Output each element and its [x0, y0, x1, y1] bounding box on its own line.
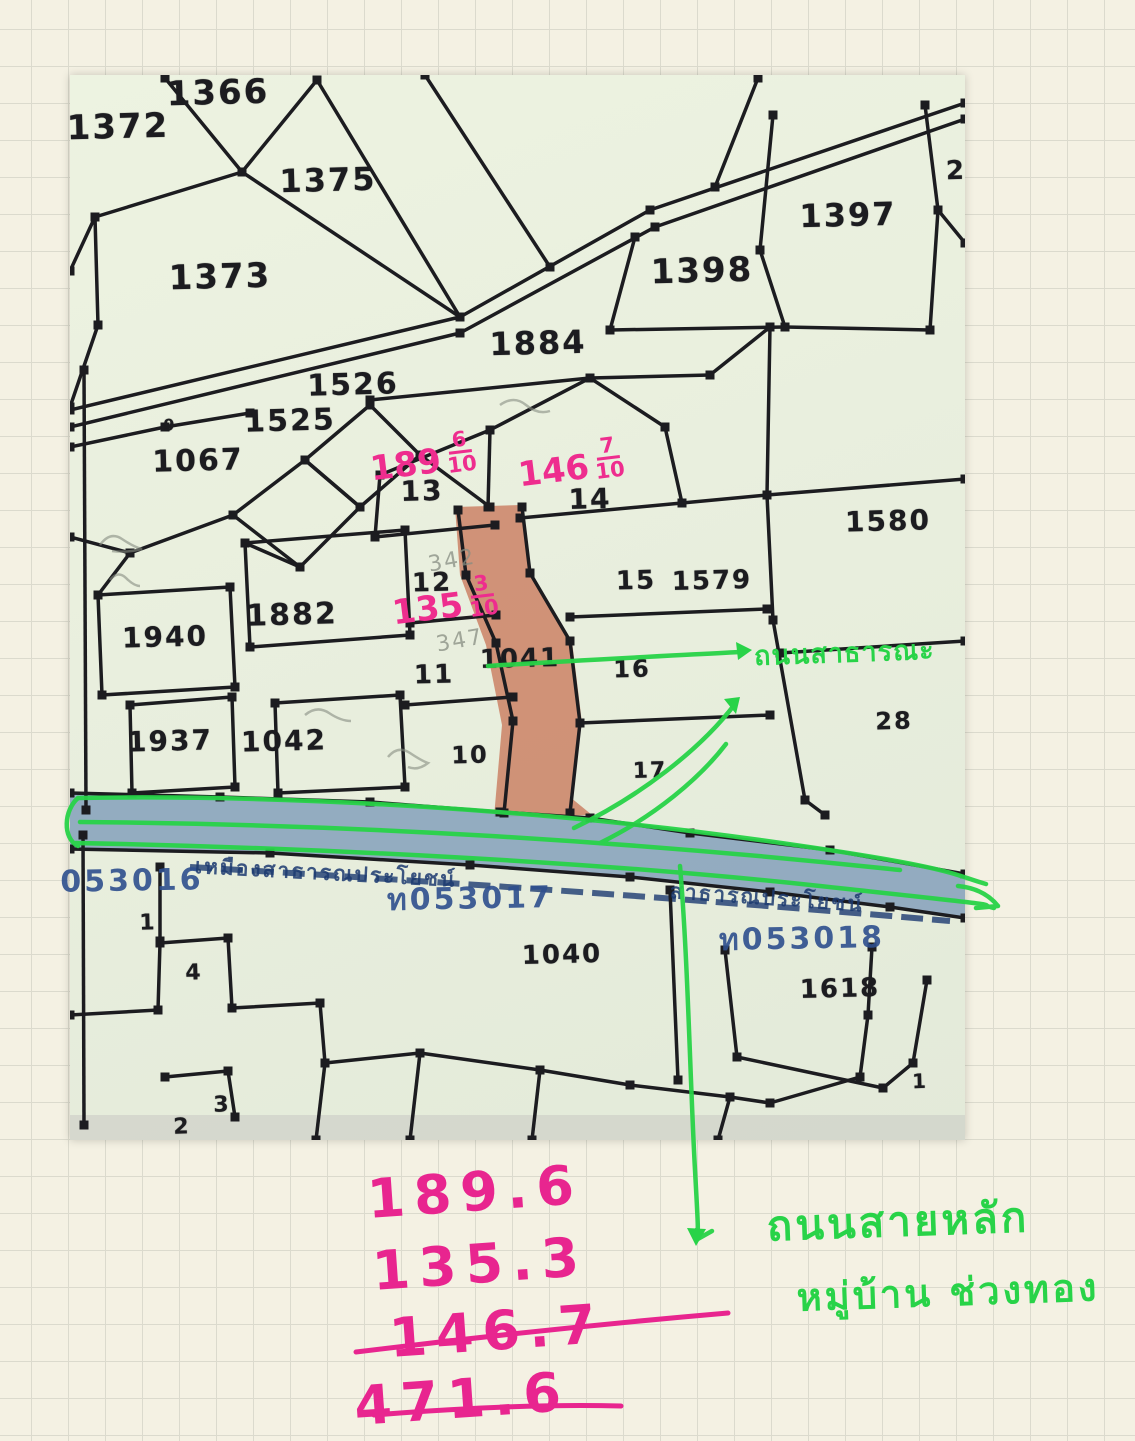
parcel-label: 10 [451, 741, 489, 770]
parcel-label: 4 [185, 960, 203, 985]
parcel-label: 1884 [489, 323, 587, 364]
parcel-label: 1579 [671, 565, 752, 597]
parcel-label: 2 [173, 1114, 191, 1139]
parcel-label: 1398 [650, 250, 754, 293]
parcel-label: 1067 [152, 442, 244, 479]
parcel-label: 16 [613, 655, 651, 684]
parcel-label: 1366 [166, 72, 270, 115]
pink-measurement-fraction: 135310 [390, 581, 500, 634]
parcel-label: 1882 [246, 596, 338, 633]
sheet-id-label: 053016 [60, 862, 204, 899]
parcel-label: 9 [163, 415, 177, 434]
map-labels: 1366137213751373139813972188415261525106… [70, 75, 965, 1140]
cadastral-map-photo: 1366137213751373139813972188415261525106… [70, 75, 965, 1140]
pencil-note: 342 [426, 545, 478, 578]
parcel-label: 1618 [799, 973, 880, 1005]
green-note-line1: ถนนสายหลัก [766, 1184, 1031, 1259]
parcel-label: 1937 [127, 723, 214, 758]
parcel-label: 1397 [799, 195, 897, 236]
parcel-label: 1372 [66, 106, 170, 149]
parcel-label: 28 [875, 707, 913, 736]
parcel-label: 1940 [122, 619, 209, 654]
parcel-label: 1580 [845, 503, 932, 538]
pencil-note: 347 [434, 625, 486, 658]
parcel-label: 1526 [307, 366, 399, 403]
calc-addend-2: 135.3 [370, 1225, 590, 1303]
calc-addend-1: 189.6 [365, 1153, 585, 1231]
calc-total: 471.6 [352, 1360, 572, 1438]
parcel-label: 1525 [244, 402, 336, 439]
parcel-label: 17 [632, 758, 667, 784]
canal-name-label: สาธารณประโยชน์ [669, 875, 865, 921]
parcel-label: 1373 [168, 256, 272, 299]
road-annotation-green: ถนนสาธารณะ [753, 628, 935, 677]
sheet-id-label: ท053018 [719, 914, 886, 964]
calc-addend-3: 146.7 [387, 1292, 607, 1370]
parcel-label: 3 [213, 1092, 231, 1117]
parcel-label: 1041 [479, 643, 560, 675]
parcel-label: 1375 [279, 160, 377, 201]
parcel-label: 1042 [241, 723, 328, 758]
parcel-label: 1 [912, 1069, 929, 1093]
pink-measurement-fraction: 189610 [368, 437, 478, 490]
parcel-label: 1040 [521, 939, 602, 971]
green-note-line2: หมู่บ้าน ช่วงทอง [796, 1256, 1101, 1328]
parcel-label: 2 [946, 156, 967, 187]
parcel-label: 15 [616, 565, 657, 596]
parcel-label: 1 [139, 910, 157, 935]
parcel-label: 11 [414, 659, 455, 690]
graph-paper-background: 1366137213751373139813972188415261525106… [0, 0, 1135, 1441]
canal-name-label: เหมืองสาธารณประโยชน์ [194, 850, 457, 897]
